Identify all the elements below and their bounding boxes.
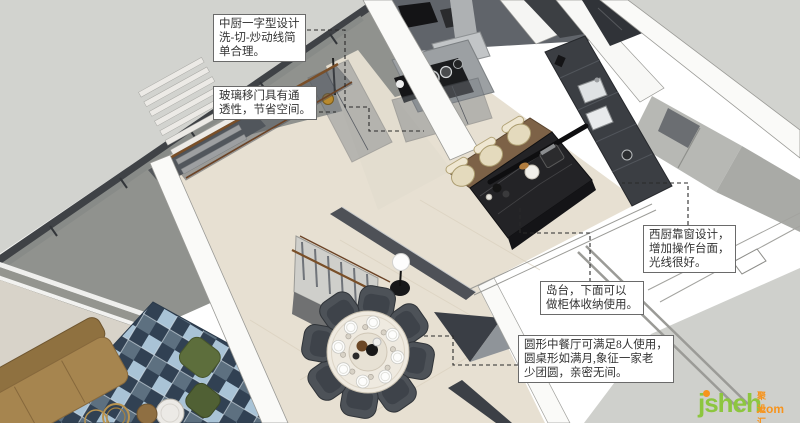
teapot: [357, 341, 368, 352]
callout-line: 做柜体收纳使用。: [546, 298, 638, 312]
callout-line: 圆桌形如满月,象征一家老: [524, 352, 668, 366]
callout-line: 岛台，下面可以: [546, 284, 638, 298]
callout-line: 圆形中餐厅可满足8人使用，: [524, 338, 668, 352]
stove-knob: [622, 150, 632, 160]
callout-line: 增加操作台面，: [649, 242, 730, 256]
render-page: 中厨一字型设计 洗-切-炒动线简 单合理。 玻璃移门具有通 透性，节省空间。 西…: [0, 0, 800, 423]
callout-line: 透性，节省空间。: [219, 103, 311, 117]
callout-line: 单合理。: [219, 45, 300, 59]
callout-line: 光线很好。: [649, 256, 730, 270]
render-canvas: [0, 0, 800, 423]
callout-round-dining: 圆形中餐厅可满足8人使用， 圆桌形如满月,象征一家老 少团圆，亲密无间。: [518, 335, 674, 383]
watermark-dot-icon: [703, 390, 710, 397]
callout-island: 岛台，下面可以 做柜体收纳使用。: [540, 281, 644, 315]
callout-glass-door: 玻璃移门具有通 透性，节省空间。: [213, 86, 317, 120]
wood-stool: [137, 404, 157, 423]
callout-west-kitchen: 西厨靠窗设计， 增加操作台面， 光线很好。: [643, 225, 736, 273]
callout-line: 中厨一字型设计: [219, 17, 300, 31]
faucet: [595, 78, 600, 83]
callout-line: 少团圆，亲密无间。: [524, 366, 668, 380]
callout-line: 洗-切-炒动线简: [219, 31, 300, 45]
callout-line: 玻璃移门具有通: [219, 89, 311, 103]
callout-line: 西厨靠窗设计，: [649, 228, 730, 242]
watermark-com-text: .com: [756, 402, 784, 416]
side-table-white: [156, 399, 184, 423]
bottle: [493, 184, 502, 193]
callout-kitchen-workline: 中厨一字型设计 洗-切-炒动线简 单合理。: [213, 14, 306, 62]
